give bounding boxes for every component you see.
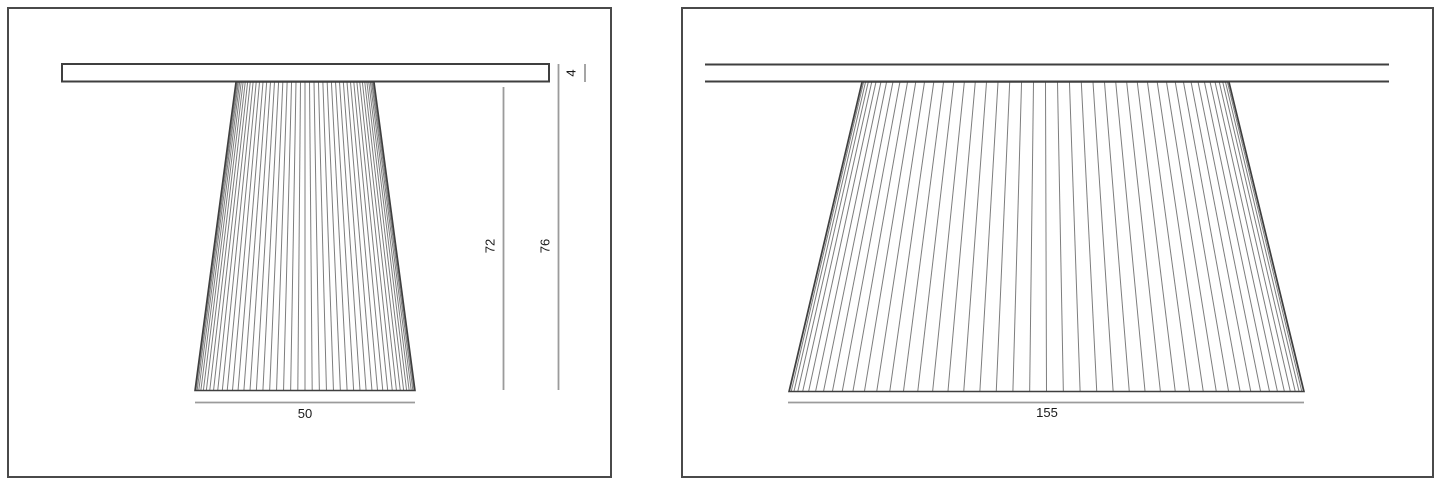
dim-label-base-width-right: 155 [1036,405,1058,420]
right-view: 155 [682,8,1433,477]
dimension-sheet: 4 72 76 50 155 [0,0,1445,487]
left-view: 4 72 76 50 [8,8,611,477]
drawing-canvas: 4 72 76 50 155 [0,0,1445,487]
right-pedestal-flutes [790,82,1304,392]
left-tabletop [62,64,549,82]
left-pedestal-flutes [195,82,415,391]
dim-label-pedestal-height: 72 [483,239,498,253]
dim-label-top-thickness: 4 [564,69,579,76]
dim-label-base-width-left: 50 [298,406,312,421]
dim-label-total-height: 76 [538,239,553,253]
